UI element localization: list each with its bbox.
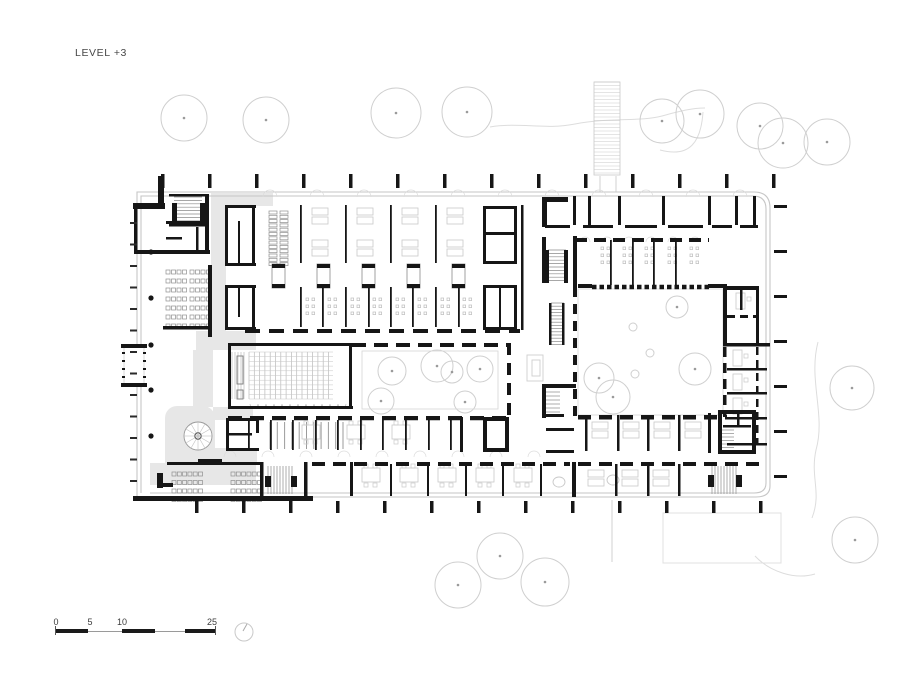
north-arrow <box>235 623 253 641</box>
architectural-drawing-sheet: LEVEL +3 0 5 10 25 <box>0 0 920 690</box>
north-arrow-icon <box>0 0 920 690</box>
